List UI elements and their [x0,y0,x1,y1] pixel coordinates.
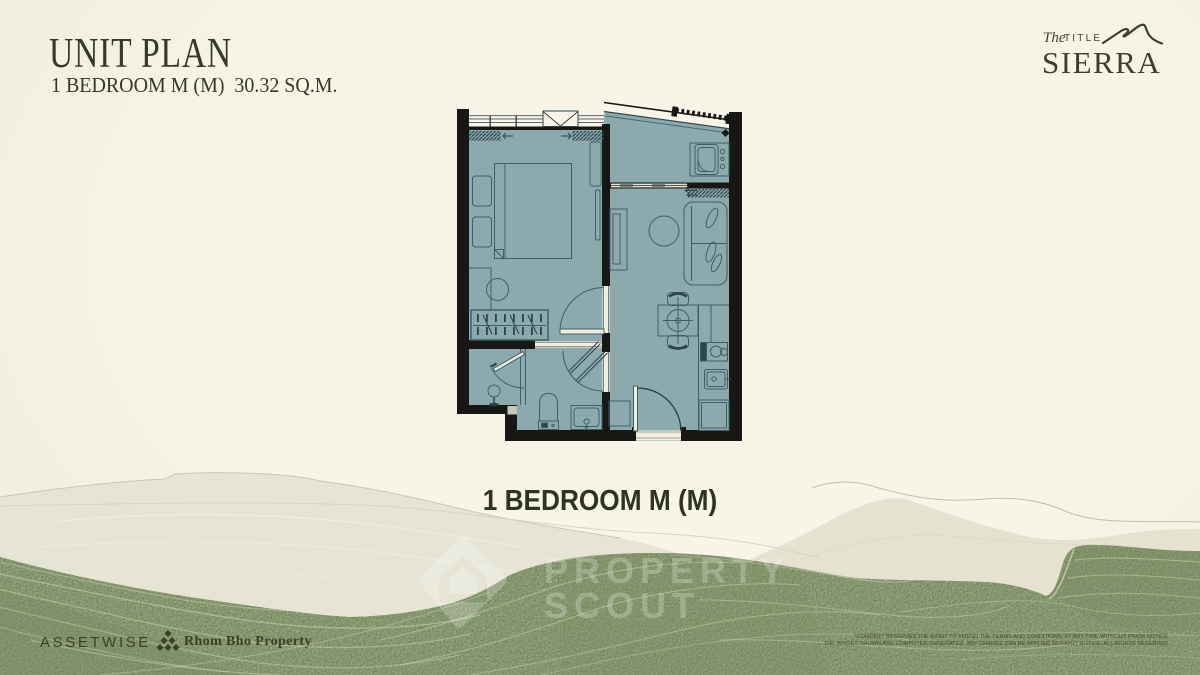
svg-text:The: The [1043,30,1066,46]
svg-text:SIERRA: SIERRA [1042,45,1161,80]
svg-text:TITLE: TITLE [1064,33,1102,44]
